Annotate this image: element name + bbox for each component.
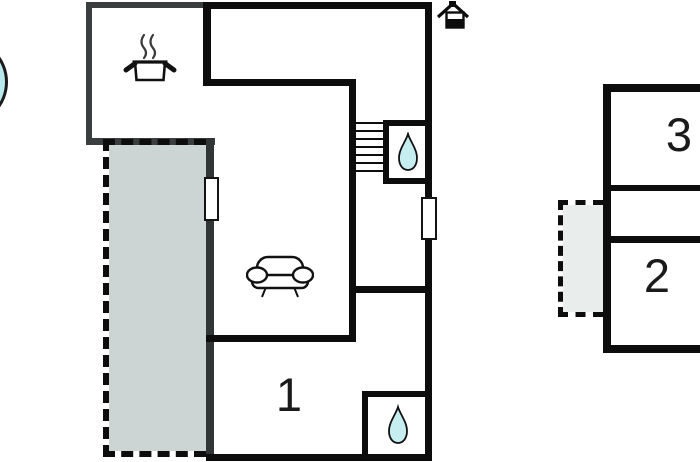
top-wall: [203, 2, 432, 9]
upper-plan-left-wall: [603, 84, 611, 353]
lower-bathroom-left-wall: [362, 391, 368, 461]
stairs-icon: [356, 122, 383, 175]
stair-hall-west-wall: [349, 79, 356, 342]
upper-plan-divider-wall-1: [611, 185, 700, 191]
cooking-pot-icon: [120, 32, 180, 84]
sofa-icon: [246, 254, 314, 298]
balcony-dashed-area: [558, 200, 603, 317]
room-label-1: 1: [267, 371, 311, 418]
window-marker-west: [204, 177, 219, 221]
pool-icon: [0, 38, 8, 126]
upper-plan-divider-wall-2: [611, 236, 700, 243]
room-label-3: 3: [657, 111, 700, 158]
room-label-2: 2: [635, 252, 679, 299]
stair-hall-bottom-wall: [349, 286, 432, 293]
terrace-dashed-area: [103, 139, 206, 457]
bottom-wall: [206, 454, 432, 461]
kitchen-left-wall: [86, 2, 92, 145]
upper-plan-top-wall: [603, 84, 700, 92]
upper-bathroom-top-wall: [383, 120, 432, 126]
living-room-bottom-wall: [206, 335, 356, 342]
water-drop-icon: [397, 132, 419, 172]
upper-bathroom-bottom-wall: [383, 178, 432, 184]
window-marker-east: [421, 197, 437, 240]
upper-plan-bottom-wall: [603, 345, 700, 353]
kitchen-top-wall: [86, 2, 210, 8]
north-house-icon: [437, 1, 469, 31]
upper-bathroom-left-wall: [383, 120, 389, 184]
dining-room-bottom-wall: [203, 79, 356, 86]
dining-room-left-wall: [203, 2, 211, 86]
water-drop-icon: [387, 404, 409, 446]
lower-bathroom-top-wall: [362, 391, 432, 397]
floor-plan-canvas: 1 3 2: [0, 0, 700, 462]
